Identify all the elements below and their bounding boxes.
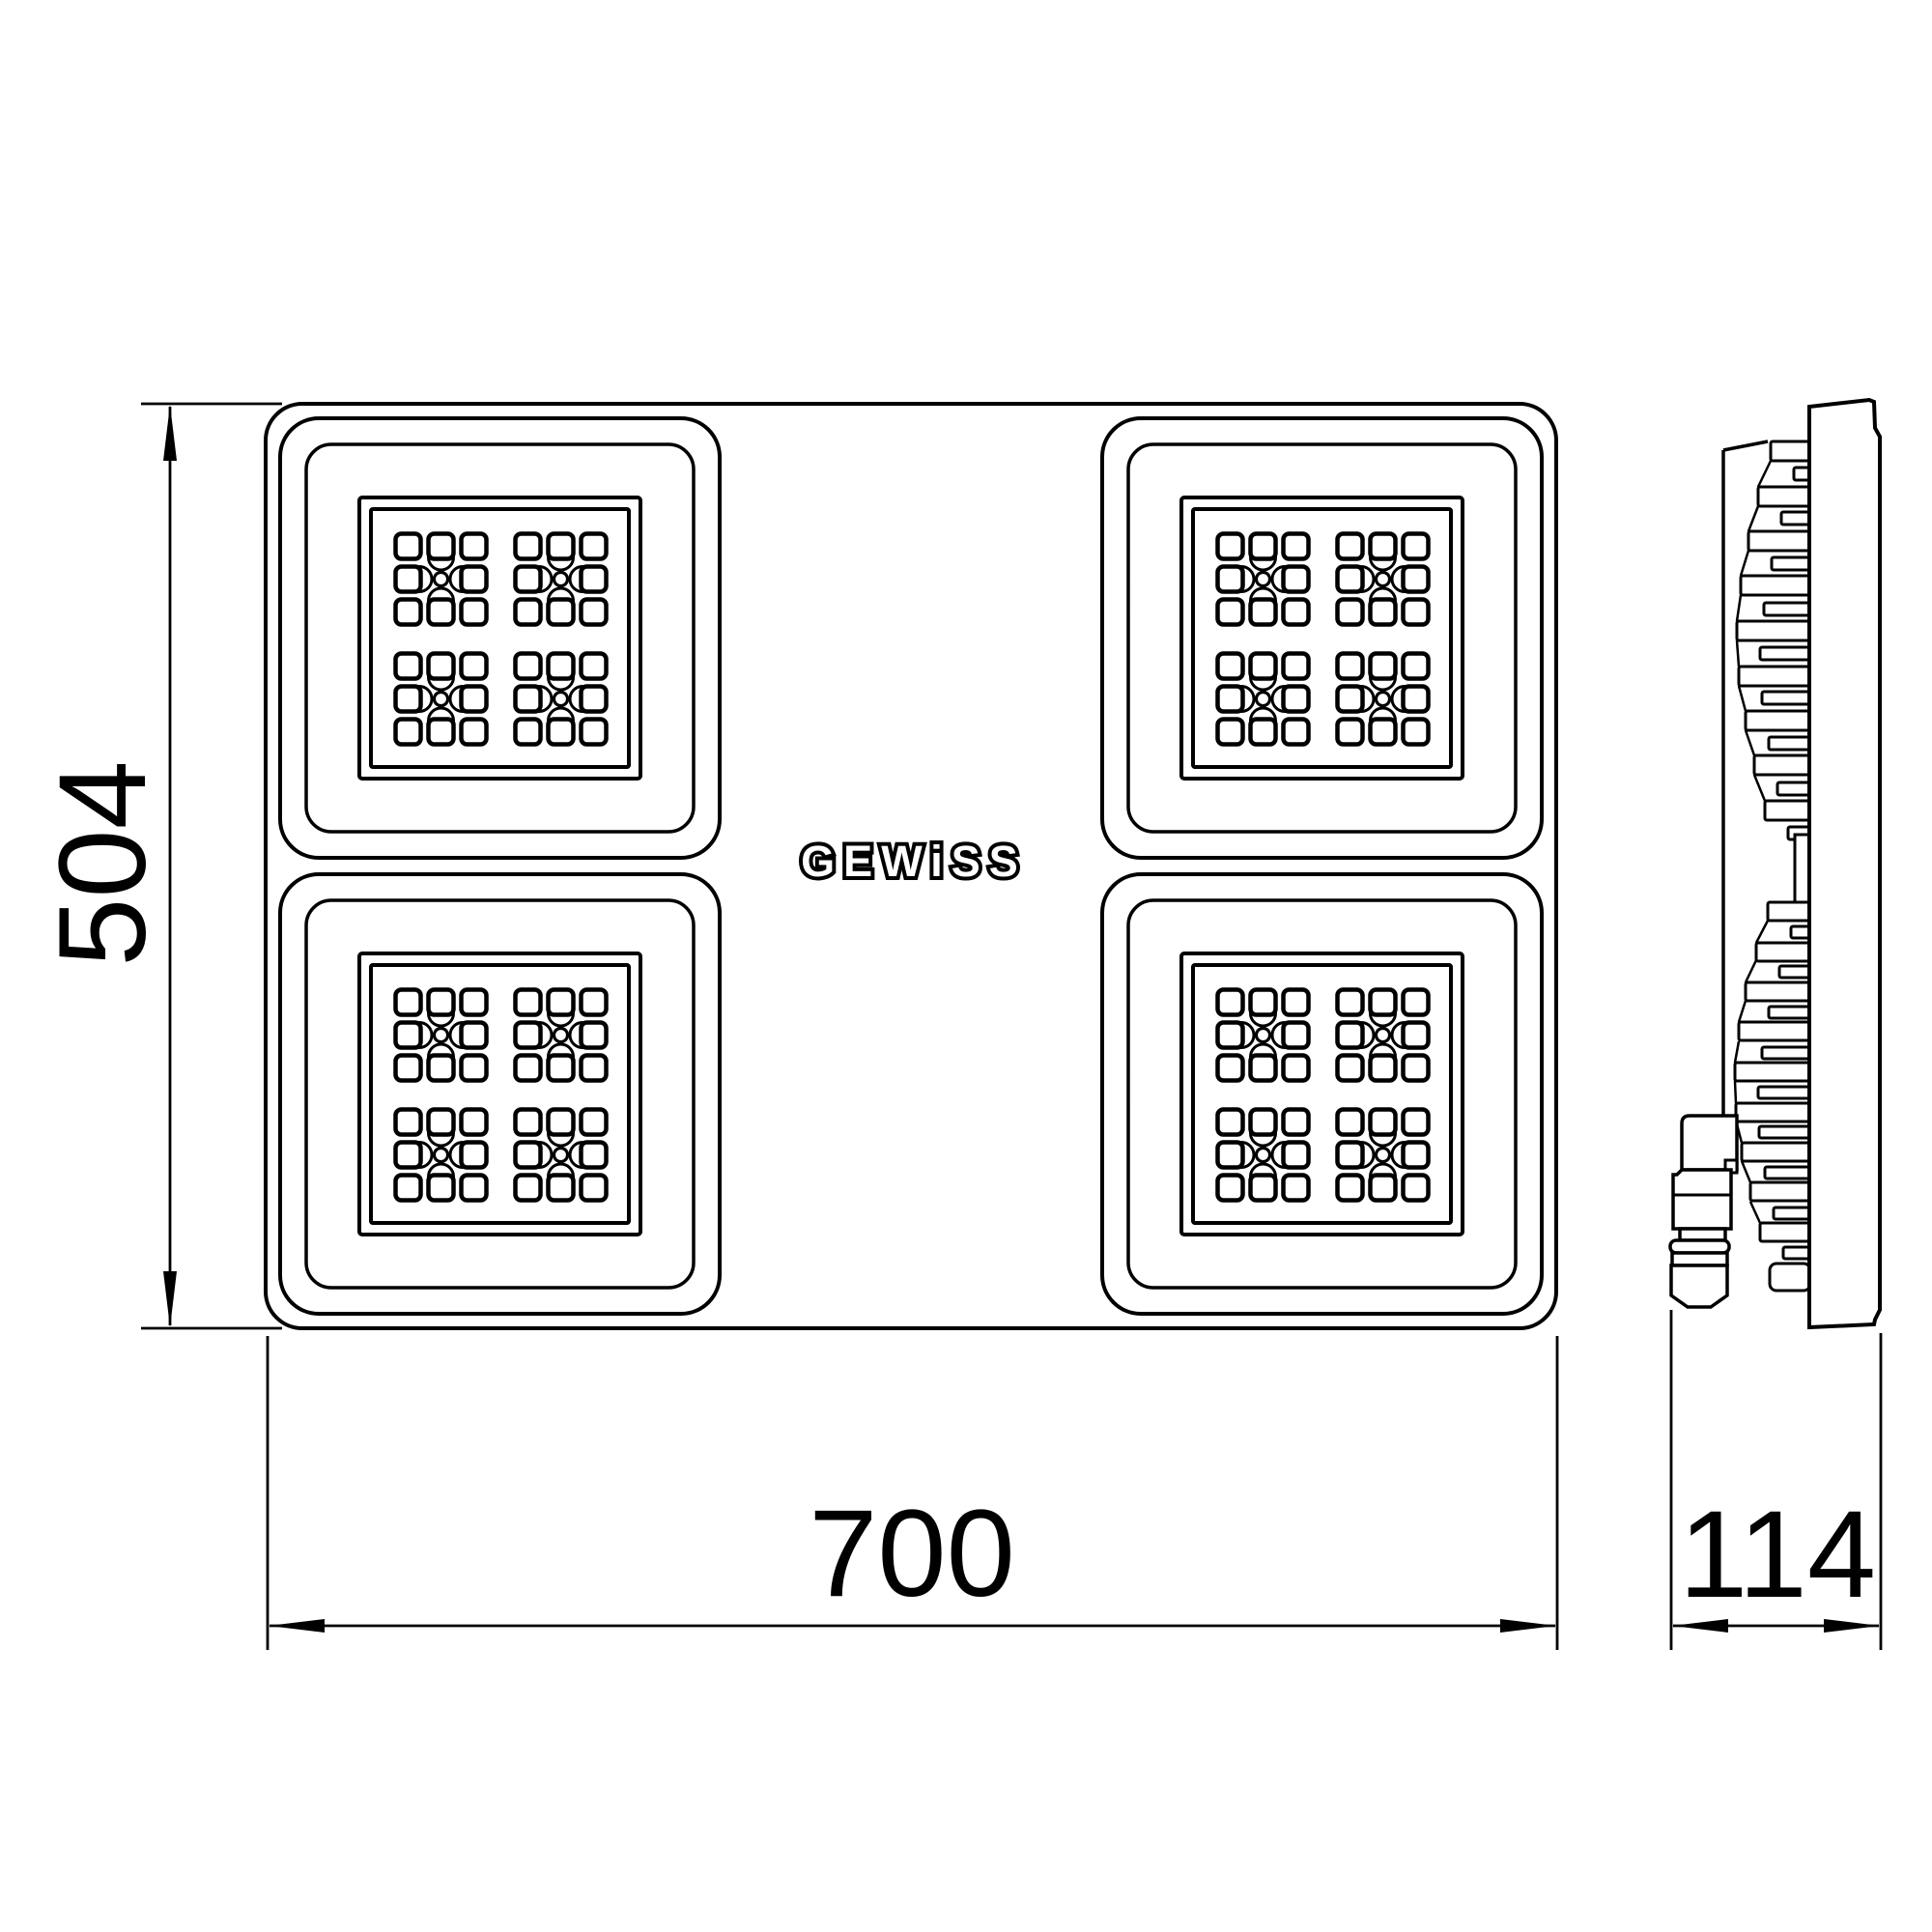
svg-text:700: 700 xyxy=(809,1485,1015,1623)
svg-text:GEWiSS: GEWiSS xyxy=(801,837,1027,886)
svg-text:114: 114 xyxy=(1679,1486,1876,1624)
svg-text:504: 504 xyxy=(34,760,172,967)
